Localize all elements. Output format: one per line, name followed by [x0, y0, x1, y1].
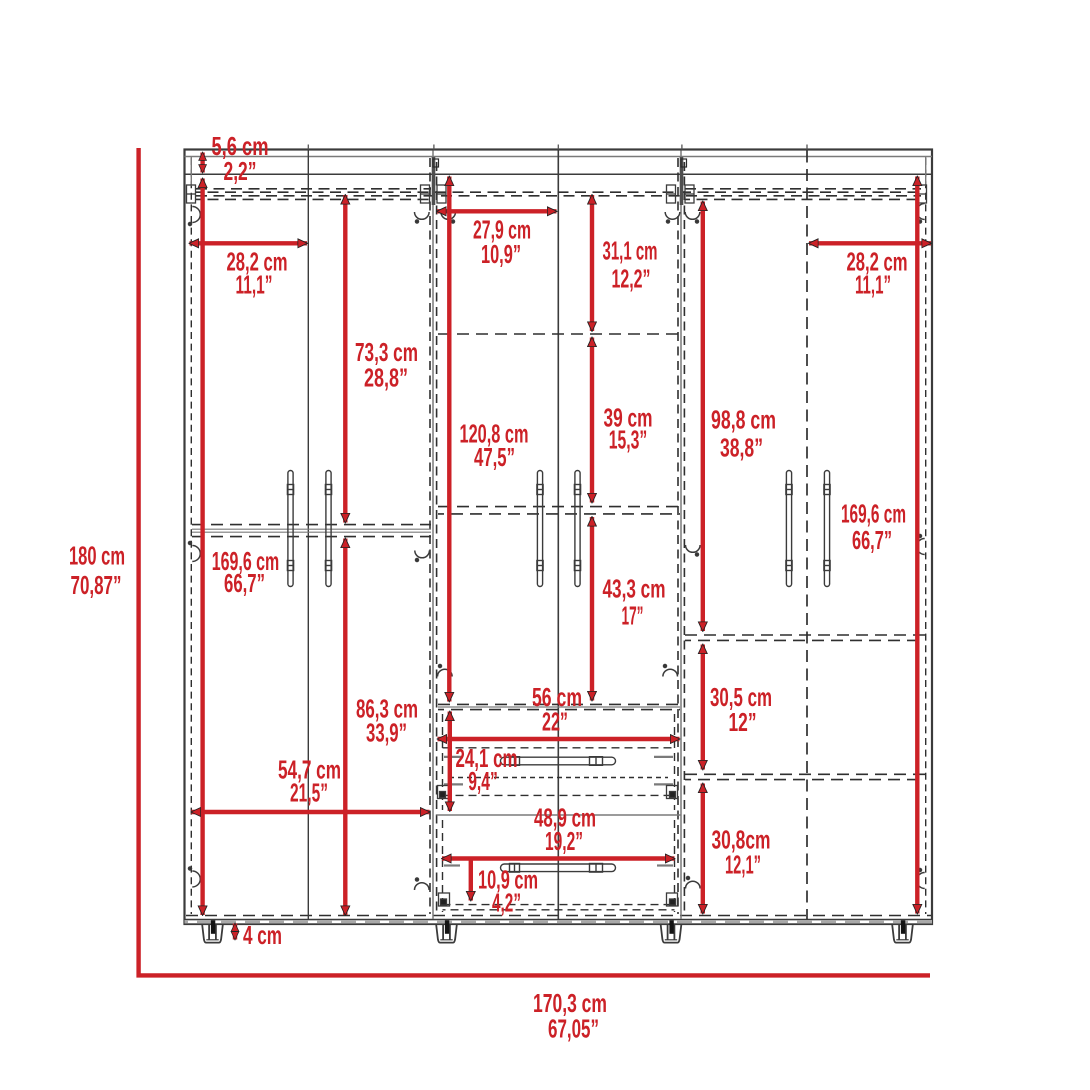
svg-text:28,8”: 28,8” — [364, 363, 408, 393]
svg-text:21,5”: 21,5” — [290, 778, 328, 808]
svg-text:66,7”: 66,7” — [224, 568, 265, 598]
svg-text:15,3”: 15,3” — [609, 425, 648, 455]
svg-text:66,7”: 66,7” — [852, 525, 892, 555]
svg-text:19,2”: 19,2” — [545, 826, 583, 856]
svg-text:38,8”: 38,8” — [720, 433, 763, 463]
svg-text:31,1 cm: 31,1 cm — [603, 236, 658, 266]
svg-text:180 cm: 180 cm — [69, 541, 125, 571]
svg-text:169,6 cm: 169,6 cm — [841, 498, 906, 528]
svg-text:9,4”: 9,4” — [468, 766, 498, 796]
svg-text:33,9”: 33,9” — [366, 718, 407, 748]
svg-text:4 cm: 4 cm — [243, 920, 282, 950]
svg-text:70,87”: 70,87” — [71, 570, 122, 600]
svg-text:11,1”: 11,1” — [855, 270, 891, 300]
svg-text:4,2”: 4,2” — [492, 888, 521, 918]
svg-text:98,8 cm: 98,8 cm — [711, 405, 776, 435]
svg-text:67,05”: 67,05” — [548, 1014, 599, 1044]
svg-text:11,1”: 11,1” — [236, 270, 273, 300]
svg-text:47,5”: 47,5” — [474, 442, 515, 472]
svg-text:10,9”: 10,9” — [481, 239, 521, 269]
svg-text:12”: 12” — [729, 707, 757, 737]
svg-text:22”: 22” — [542, 707, 568, 737]
svg-text:12,1”: 12,1” — [725, 850, 761, 880]
svg-text:17”: 17” — [622, 601, 644, 631]
svg-text:43,3 cm: 43,3 cm — [603, 574, 666, 604]
svg-text:12,2”: 12,2” — [612, 264, 651, 294]
svg-text:2,2”: 2,2” — [224, 156, 257, 186]
